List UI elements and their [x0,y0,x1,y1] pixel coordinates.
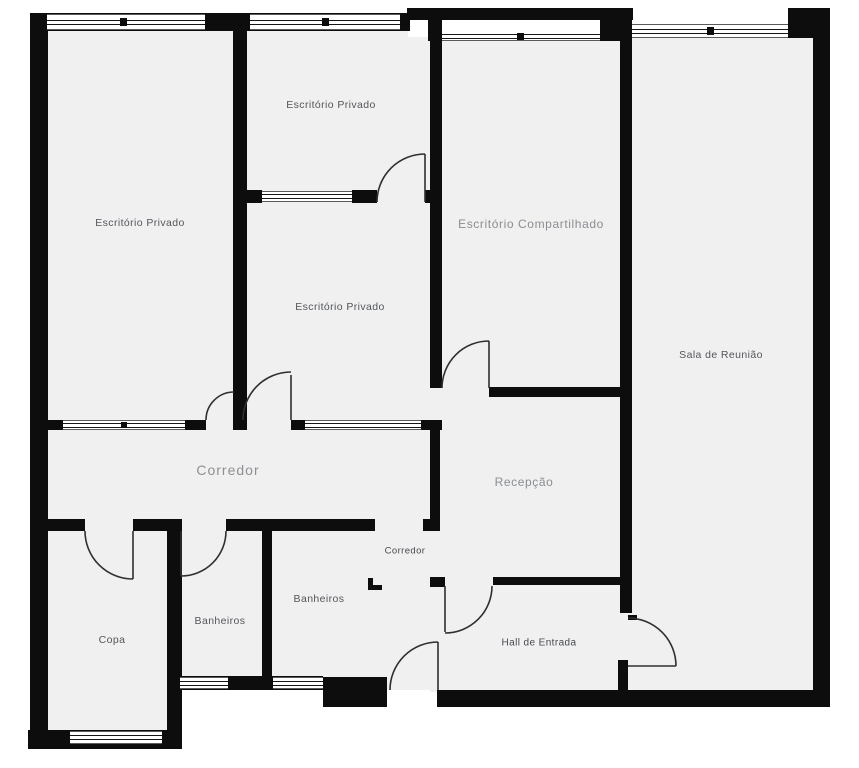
facade-notch [408,20,430,37]
wall-banheiros-divider [262,531,272,676]
room-label-copa: Copa [99,634,126,646]
wall-office-north-b [352,190,377,203]
mullion [517,33,524,40]
wall-corredor-top-stub [291,420,305,430]
room-label-recepcao: Recepção [495,475,554,489]
wall-step-block [323,677,387,707]
wall-corredor-bottom-stub [423,519,440,531]
floor-plan: Escritório Privado Escritório Privado Es… [0,0,859,768]
wall-corredor-top-pier1 [185,420,206,430]
window-banheiros-2 [273,677,323,689]
room-label-hall-de-entrada: Hall de Entrada [502,638,577,649]
floor-copa [30,519,182,739]
mullion [120,18,127,26]
floor-hall-de-entrada [430,577,630,692]
wall-exterior-left [30,13,48,749]
room-label-escritorio-privado-centro: Escritório Privado [295,301,384,313]
wall-office-north-a [237,190,262,203]
wall-stub-l-horizontal [368,585,382,590]
mullion [121,422,127,428]
room-label-escritorio-compartilhado: Escritório Compartilhado [458,217,604,231]
room-label-corredor-principal: Corredor [196,462,259,478]
floor-escritorio-compartilhado [430,8,632,398]
mullion [707,27,714,35]
mullion [322,18,329,26]
wall-office-divider [233,13,247,430]
room-label-escritorio-privado-norte: Escritório Privado [286,99,375,111]
room-label-escritorio-privado-oeste: Escritório Privado [95,217,184,229]
wall-corredor-bottom-c [226,519,375,531]
wall-exterior-right [813,8,830,707]
wall-corredor-top-a [43,420,63,430]
window-office-divider [262,191,352,202]
floor-banheiros-esquerda [168,519,272,687]
window-corredor-right [305,420,421,430]
wall-sala-door-stub [628,615,637,620]
room-label-banheiros-esquerda: Banheiros [195,615,246,627]
wall-corredor-bottom-b [133,519,180,531]
wall-compartilhado-left [430,8,442,388]
window-copa-bottom [70,731,162,744]
room-label-sala-de-reuniao: Sala de Reunião [679,349,763,361]
window-banheiros-1 [180,677,228,689]
wall-hall-top-stub [430,577,445,587]
wall-copa-right [167,519,182,749]
room-label-corredor-servico: Corredor [385,546,426,557]
wall-recepcao-bottom [493,577,620,585]
wall-corredor-bottom-a [43,519,85,531]
wall-hall-right [618,660,628,692]
wall-corredor-top-pier2 [421,420,442,430]
wall-sala-left [620,8,632,613]
wall-exterior-bottom-right [437,690,830,707]
wall-compartilhado-bottom [489,387,632,397]
room-label-banheiros-direita: Banheiros [294,593,345,605]
wall-recepcao-left [430,430,440,527]
